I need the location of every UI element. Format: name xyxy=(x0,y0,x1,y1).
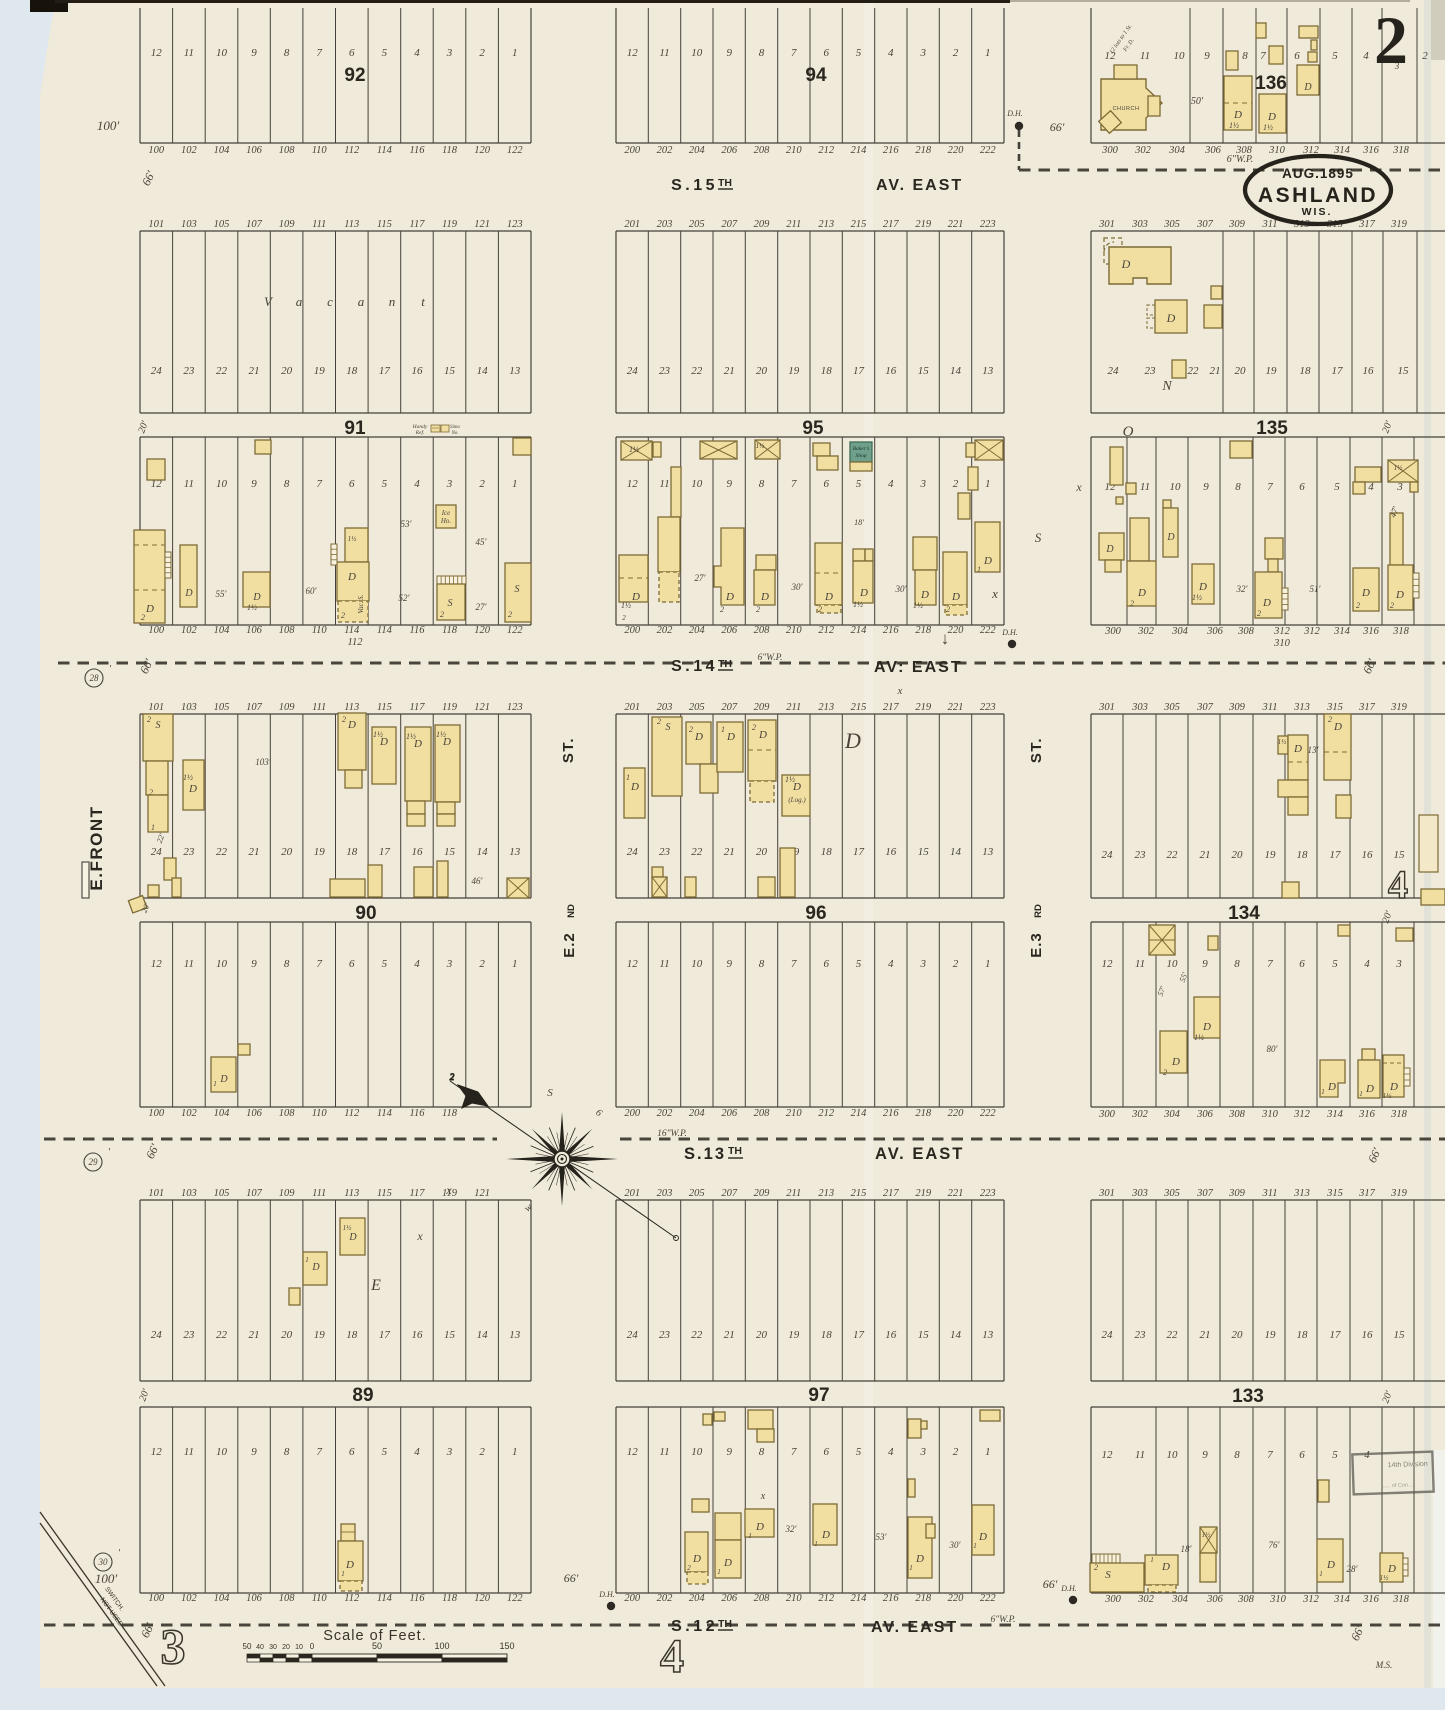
svg-text:318: 318 xyxy=(1392,1594,1410,1605)
svg-text:95: 95 xyxy=(802,418,824,439)
svg-text:D: D xyxy=(824,591,833,603)
svg-text:101: 101 xyxy=(148,1188,164,1199)
svg-text:15: 15 xyxy=(444,846,456,858)
svg-text:17: 17 xyxy=(379,365,391,377)
svg-text:S: S xyxy=(666,722,671,733)
svg-text:7: 7 xyxy=(316,47,322,59)
svg-text:105: 105 xyxy=(214,702,230,713)
svg-text:305: 305 xyxy=(1163,702,1180,713)
svg-text:5: 5 xyxy=(856,47,862,59)
svg-text:108: 108 xyxy=(279,1593,296,1604)
svg-text:1½: 1½ xyxy=(1192,593,1202,602)
svg-text:9: 9 xyxy=(251,47,257,59)
svg-text:317: 317 xyxy=(1358,702,1376,713)
svg-text:18′: 18′ xyxy=(1181,1544,1193,1554)
svg-text:222: 222 xyxy=(980,1593,997,1604)
svg-text:18: 18 xyxy=(346,365,358,377)
svg-text:6: 6 xyxy=(349,47,355,59)
svg-text:18′: 18′ xyxy=(854,518,864,527)
svg-text:40: 40 xyxy=(256,1644,264,1651)
svg-text:18: 18 xyxy=(821,1329,833,1341)
svg-text:13: 13 xyxy=(509,365,521,377)
svg-text:120: 120 xyxy=(474,1593,491,1604)
svg-text:30: 30 xyxy=(98,1557,109,1567)
svg-text:20: 20 xyxy=(282,1644,290,1651)
svg-text:8: 8 xyxy=(759,958,765,970)
svg-text:118: 118 xyxy=(442,1108,458,1119)
svg-text:209: 209 xyxy=(754,702,771,713)
svg-text:316: 316 xyxy=(1358,1109,1376,1120)
svg-text:117: 117 xyxy=(410,702,426,713)
svg-text:3: 3 xyxy=(919,47,926,59)
svg-text:216: 216 xyxy=(883,625,900,636)
svg-text:7: 7 xyxy=(791,478,797,490)
svg-text:E: E xyxy=(370,1277,381,1294)
svg-text:4: 4 xyxy=(1368,481,1374,493)
svg-text:24: 24 xyxy=(1102,849,1114,861)
svg-text:9: 9 xyxy=(251,478,257,490)
svg-text:136: 136 xyxy=(1255,73,1287,94)
svg-text:9: 9 xyxy=(1202,958,1208,970)
svg-text:14: 14 xyxy=(950,846,962,858)
svg-text:D: D xyxy=(1171,1056,1180,1068)
svg-text:313: 313 xyxy=(1293,1188,1310,1199)
svg-text:16: 16 xyxy=(412,846,424,858)
svg-text:2: 2 xyxy=(1422,50,1428,62)
svg-text:118: 118 xyxy=(442,145,458,156)
svg-text:118: 118 xyxy=(442,1593,458,1604)
svg-text:308: 308 xyxy=(1228,1109,1246,1120)
svg-text:315: 315 xyxy=(1326,702,1343,713)
svg-text:D: D xyxy=(252,592,261,603)
svg-text:11: 11 xyxy=(659,478,669,490)
svg-text:c: c xyxy=(327,294,333,309)
svg-text:11: 11 xyxy=(1135,958,1145,970)
svg-text:9: 9 xyxy=(726,47,732,59)
svg-text:311: 311 xyxy=(1262,702,1278,713)
svg-text:D: D xyxy=(978,1531,987,1543)
svg-text:311: 311 xyxy=(1262,219,1278,230)
svg-text:CHURCH: CHURCH xyxy=(1113,106,1140,112)
svg-text:D: D xyxy=(1333,721,1342,733)
svg-text:206: 206 xyxy=(721,145,738,156)
svg-text:18: 18 xyxy=(821,846,833,858)
svg-text:1: 1 xyxy=(626,773,630,782)
svg-text:TH: TH xyxy=(718,658,732,670)
svg-text:222: 222 xyxy=(980,1108,997,1119)
svg-text:21: 21 xyxy=(1200,849,1211,861)
svg-text:6: 6 xyxy=(823,478,829,490)
svg-text:11: 11 xyxy=(184,47,194,59)
svg-text:309: 309 xyxy=(1228,1188,1246,1199)
svg-text:317: 317 xyxy=(1358,219,1376,230)
svg-text:302: 302 xyxy=(1137,1594,1155,1605)
svg-text:14th Division: 14th Division xyxy=(1388,1461,1428,1469)
svg-text:66′: 66′ xyxy=(1050,120,1065,134)
svg-text:218: 218 xyxy=(915,1108,932,1119)
svg-text:No.: No. xyxy=(450,431,458,436)
svg-text:D: D xyxy=(219,1074,228,1085)
svg-text:66′: 66′ xyxy=(1043,1577,1058,1591)
svg-text:8: 8 xyxy=(1235,481,1241,493)
svg-text:4: 4 xyxy=(414,47,420,59)
svg-text:22: 22 xyxy=(1167,1329,1179,1341)
svg-text:D: D xyxy=(760,591,769,603)
svg-text:D: D xyxy=(692,1553,701,1565)
svg-text:D.H.: D.H. xyxy=(1001,628,1018,637)
svg-text:10: 10 xyxy=(1170,481,1182,493)
svg-text:24: 24 xyxy=(1102,1329,1114,1341)
svg-text:2: 2 xyxy=(479,958,485,970)
svg-text:22: 22 xyxy=(216,846,228,858)
svg-text:222: 222 xyxy=(980,145,997,156)
svg-text:205: 205 xyxy=(689,219,705,230)
svg-text:8: 8 xyxy=(759,1446,765,1458)
svg-text:1½: 1½ xyxy=(1229,121,1239,130)
svg-text:50: 50 xyxy=(243,1642,252,1651)
svg-text:D: D xyxy=(1303,82,1312,93)
svg-text:316: 316 xyxy=(1362,626,1380,637)
svg-text:221: 221 xyxy=(948,702,964,713)
svg-text:310: 310 xyxy=(1273,638,1291,649)
svg-text:100: 100 xyxy=(434,1641,449,1651)
svg-text:D: D xyxy=(1166,532,1175,543)
svg-text:D: D xyxy=(1121,257,1131,271)
svg-text:8: 8 xyxy=(759,47,765,59)
svg-text:9: 9 xyxy=(726,478,732,490)
svg-text:23: 23 xyxy=(659,365,671,377)
svg-text:114: 114 xyxy=(377,145,393,156)
svg-text:11: 11 xyxy=(184,478,194,490)
svg-text:19: 19 xyxy=(1266,365,1278,377)
svg-text:209: 209 xyxy=(754,1188,771,1199)
svg-text:208: 208 xyxy=(754,145,771,156)
svg-text:111: 111 xyxy=(312,1188,326,1199)
svg-text:3: 3 xyxy=(919,958,926,970)
svg-text:30: 30 xyxy=(269,1644,277,1651)
svg-text:3: 3 xyxy=(1396,481,1403,493)
svg-text:TH: TH xyxy=(728,1145,742,1157)
svg-text:108: 108 xyxy=(279,145,296,156)
svg-text:21: 21 xyxy=(724,365,735,377)
svg-text:23: 23 xyxy=(183,846,195,858)
svg-text:20: 20 xyxy=(1235,365,1247,377)
svg-text:3: 3 xyxy=(919,1446,926,1458)
svg-text:2: 2 xyxy=(508,610,512,619)
svg-text:Shop: Shop xyxy=(856,453,867,459)
svg-text:10: 10 xyxy=(216,1446,228,1458)
svg-text:1½: 1½ xyxy=(785,775,795,784)
svg-text:12: 12 xyxy=(627,47,639,59)
svg-text:Vac. S.: Vac. S. xyxy=(357,594,365,613)
svg-text:1½: 1½ xyxy=(343,1224,353,1232)
svg-text:17: 17 xyxy=(379,846,391,858)
svg-text:21: 21 xyxy=(249,365,260,377)
svg-text:108: 108 xyxy=(279,625,296,636)
svg-text:6″W.P.: 6″W.P. xyxy=(990,1615,1015,1625)
svg-text:6: 6 xyxy=(1294,50,1300,62)
svg-text:12: 12 xyxy=(627,958,639,970)
svg-text:7: 7 xyxy=(791,47,797,59)
svg-text:2: 2 xyxy=(752,723,756,732)
svg-text:1: 1 xyxy=(341,1570,345,1578)
svg-text:12: 12 xyxy=(627,478,639,490)
svg-text:110: 110 xyxy=(312,1593,328,1604)
svg-text:11: 11 xyxy=(659,1446,669,1458)
svg-text:D: D xyxy=(726,731,735,743)
svg-text:204: 204 xyxy=(689,1593,706,1604)
svg-text:1: 1 xyxy=(748,1532,752,1540)
svg-text:D: D xyxy=(311,1262,320,1273)
svg-text:24: 24 xyxy=(1108,365,1120,377)
svg-text:315: 315 xyxy=(1326,1188,1343,1199)
svg-text:5: 5 xyxy=(856,1446,862,1458)
svg-text:1: 1 xyxy=(985,478,991,490)
svg-text:50′: 50′ xyxy=(1191,96,1204,107)
svg-text:9: 9 xyxy=(1203,481,1209,493)
svg-text:104: 104 xyxy=(214,145,231,156)
svg-text:28: 28 xyxy=(90,673,100,683)
svg-text:1: 1 xyxy=(909,1564,913,1572)
svg-text:215: 215 xyxy=(851,219,867,230)
svg-text:60′: 60′ xyxy=(306,586,318,596)
svg-text:210: 210 xyxy=(786,625,803,636)
svg-text:20: 20 xyxy=(1232,849,1244,861)
svg-text:303: 303 xyxy=(1131,1188,1148,1199)
svg-text:1: 1 xyxy=(985,1446,991,1458)
svg-text:18: 18 xyxy=(1297,1329,1309,1341)
svg-text:309: 309 xyxy=(1228,219,1246,230)
svg-text:318: 318 xyxy=(1390,1109,1408,1120)
svg-text:304: 304 xyxy=(1171,626,1189,637)
svg-text:3: 3 xyxy=(446,1446,453,1458)
svg-text:202: 202 xyxy=(657,1593,674,1604)
svg-text:13′: 13′ xyxy=(1308,745,1320,755)
svg-text:1½: 1½ xyxy=(629,445,639,454)
svg-text:4: 4 xyxy=(1388,862,1408,907)
svg-text:116: 116 xyxy=(410,145,426,156)
svg-text:D: D xyxy=(920,589,929,601)
svg-text:5: 5 xyxy=(1332,1449,1338,1461)
svg-text:202: 202 xyxy=(657,625,674,636)
svg-text:213: 213 xyxy=(818,702,834,713)
svg-text:19: 19 xyxy=(314,1329,326,1341)
svg-text:4: 4 xyxy=(414,1446,420,1458)
svg-text:6″W.P.: 6″W.P. xyxy=(1227,154,1253,165)
svg-text:AV. EAST: AV. EAST xyxy=(871,1619,958,1636)
svg-text:24: 24 xyxy=(151,365,163,377)
svg-text:314: 314 xyxy=(1333,626,1351,637)
svg-text:208: 208 xyxy=(754,625,771,636)
svg-text:1: 1 xyxy=(151,823,155,832)
svg-text:222: 222 xyxy=(980,625,997,636)
svg-text:105: 105 xyxy=(214,219,230,230)
svg-text:116: 116 xyxy=(410,625,426,636)
svg-text:219: 219 xyxy=(915,702,932,713)
svg-text:16: 16 xyxy=(885,846,897,858)
svg-text:100: 100 xyxy=(148,145,165,156)
svg-text:7: 7 xyxy=(791,958,797,970)
svg-text:55′: 55′ xyxy=(216,589,228,599)
svg-text:Simo: Simo xyxy=(450,425,461,430)
svg-text:28′: 28′ xyxy=(1347,1564,1359,1574)
svg-text:1: 1 xyxy=(305,1256,309,1264)
svg-text:207: 207 xyxy=(721,219,738,230)
svg-text:2: 2 xyxy=(1130,599,1134,608)
svg-text:216: 216 xyxy=(883,145,900,156)
svg-text:302: 302 xyxy=(1137,626,1155,637)
svg-text:111: 111 xyxy=(312,219,326,230)
svg-text:AV: EAST: AV: EAST xyxy=(874,659,963,676)
svg-text:211: 211 xyxy=(786,219,801,230)
svg-text:1½: 1½ xyxy=(247,603,257,612)
svg-text:1: 1 xyxy=(717,1568,721,1576)
svg-text:17: 17 xyxy=(1332,365,1344,377)
svg-text:32′: 32′ xyxy=(1236,584,1249,594)
svg-text:18: 18 xyxy=(346,846,358,858)
svg-text:D: D xyxy=(188,783,197,795)
svg-text:1½: 1½ xyxy=(1194,1033,1204,1042)
svg-text:10: 10 xyxy=(1167,958,1179,970)
svg-text:304: 304 xyxy=(1171,1594,1189,1605)
svg-text:17: 17 xyxy=(853,365,865,377)
svg-text:121: 121 xyxy=(474,219,490,230)
svg-text:3: 3 xyxy=(446,47,453,59)
svg-text:2: 2 xyxy=(953,1446,959,1458)
svg-text:24: 24 xyxy=(151,1329,163,1341)
svg-text:218: 218 xyxy=(915,1593,932,1604)
svg-text:2: 2 xyxy=(689,725,693,734)
svg-text:Ice: Ice xyxy=(441,509,451,517)
svg-text:1: 1 xyxy=(977,565,981,574)
svg-text:104: 104 xyxy=(214,1593,231,1604)
svg-text:204: 204 xyxy=(689,625,706,636)
svg-text:16″W.P.: 16″W.P. xyxy=(657,1129,687,1139)
svg-text:11: 11 xyxy=(1135,1449,1145,1461)
svg-text:30′: 30′ xyxy=(791,582,804,592)
svg-text:96: 96 xyxy=(805,903,826,924)
svg-text:4: 4 xyxy=(1363,50,1369,62)
svg-text:212: 212 xyxy=(818,145,835,156)
svg-text:13: 13 xyxy=(982,365,994,377)
svg-text:121: 121 xyxy=(474,1188,490,1199)
svg-text:19: 19 xyxy=(788,1329,800,1341)
svg-text:D: D xyxy=(723,1557,732,1569)
svg-text:307: 307 xyxy=(1196,702,1214,713)
svg-text:214: 214 xyxy=(851,1593,868,1604)
svg-text:2: 2 xyxy=(1094,1563,1098,1572)
svg-text:1: 1 xyxy=(512,478,518,490)
svg-text:D: D xyxy=(1327,1081,1336,1093)
svg-text:11: 11 xyxy=(659,47,669,59)
svg-text:17: 17 xyxy=(853,1329,865,1341)
svg-text:5: 5 xyxy=(1334,481,1340,493)
svg-text:213: 213 xyxy=(818,219,834,230)
svg-text:D: D xyxy=(630,781,639,793)
svg-text:312: 312 xyxy=(1302,1594,1320,1605)
svg-text:15: 15 xyxy=(444,365,456,377)
svg-text:1½: 1½ xyxy=(348,535,358,543)
svg-text:8: 8 xyxy=(1242,50,1248,62)
svg-text:301: 301 xyxy=(1098,1188,1115,1199)
svg-text:308: 308 xyxy=(1237,626,1255,637)
svg-text:10: 10 xyxy=(1167,1449,1179,1461)
svg-text:300: 300 xyxy=(1098,1109,1116,1120)
svg-text:S: S xyxy=(515,584,520,595)
svg-text:1: 1 xyxy=(1319,1570,1323,1578)
svg-text:303: 303 xyxy=(1131,702,1148,713)
svg-text:2: 2 xyxy=(1390,601,1394,610)
svg-text:2: 2 xyxy=(756,605,760,614)
svg-text:D: D xyxy=(725,591,734,603)
svg-text:113: 113 xyxy=(344,219,359,230)
svg-text:11: 11 xyxy=(1140,50,1150,62)
svg-text:114: 114 xyxy=(377,1108,393,1119)
svg-text:306: 306 xyxy=(1204,145,1222,156)
svg-text:104: 104 xyxy=(214,625,231,636)
svg-text:D: D xyxy=(694,731,703,743)
svg-text:51′: 51′ xyxy=(1310,584,1322,594)
svg-text:206: 206 xyxy=(721,1108,738,1119)
svg-text:21: 21 xyxy=(1200,1329,1211,1341)
svg-text:312: 312 xyxy=(1293,1109,1311,1120)
svg-text:22: 22 xyxy=(216,365,228,377)
svg-text:5: 5 xyxy=(382,958,388,970)
svg-text:206: 206 xyxy=(721,1593,738,1604)
svg-text:105: 105 xyxy=(214,1188,230,1199)
svg-text:16: 16 xyxy=(1362,849,1374,861)
svg-text:20: 20 xyxy=(281,365,293,377)
svg-text:317: 317 xyxy=(1358,1188,1376,1199)
svg-text:2: 2 xyxy=(479,1446,485,1458)
svg-text:↓: ↓ xyxy=(941,629,950,648)
svg-text:22: 22 xyxy=(216,1329,228,1341)
svg-text:1½: 1½ xyxy=(853,600,863,609)
svg-text:13: 13 xyxy=(982,846,994,858)
svg-text:80′: 80′ xyxy=(1267,1044,1279,1054)
svg-text:E.FRONT: E.FRONT xyxy=(87,805,106,890)
svg-text:3: 3 xyxy=(1395,958,1402,970)
svg-text:21: 21 xyxy=(249,1329,260,1341)
svg-text:217: 217 xyxy=(883,219,900,230)
svg-text:19: 19 xyxy=(314,365,326,377)
svg-text:101: 101 xyxy=(148,219,164,230)
svg-text:23: 23 xyxy=(1145,365,1157,377)
svg-text:2: 2 xyxy=(1257,609,1261,618)
svg-text:5: 5 xyxy=(382,1446,388,1458)
svg-text:D: D xyxy=(1105,544,1114,555)
svg-text:91: 91 xyxy=(344,418,366,439)
svg-text:2: 2 xyxy=(450,1072,455,1082)
svg-text:TH: TH xyxy=(718,1618,732,1630)
svg-text:100′: 100′ xyxy=(97,118,120,133)
svg-text:1: 1 xyxy=(512,47,518,59)
svg-text:4: 4 xyxy=(888,1446,894,1458)
svg-text:311: 311 xyxy=(1262,1188,1278,1199)
svg-text:8: 8 xyxy=(1234,958,1240,970)
svg-text:123: 123 xyxy=(507,219,523,230)
svg-text:3: 3 xyxy=(161,1618,186,1674)
svg-text:112: 112 xyxy=(344,1593,360,1604)
svg-text:D: D xyxy=(184,588,193,599)
svg-text:219: 219 xyxy=(915,219,932,230)
svg-text:217: 217 xyxy=(883,702,900,713)
svg-text:216: 216 xyxy=(883,1593,900,1604)
svg-text:210: 210 xyxy=(786,1593,803,1604)
svg-text:118: 118 xyxy=(442,625,458,636)
svg-text:5: 5 xyxy=(382,478,388,490)
svg-text:211: 211 xyxy=(786,1188,801,1199)
